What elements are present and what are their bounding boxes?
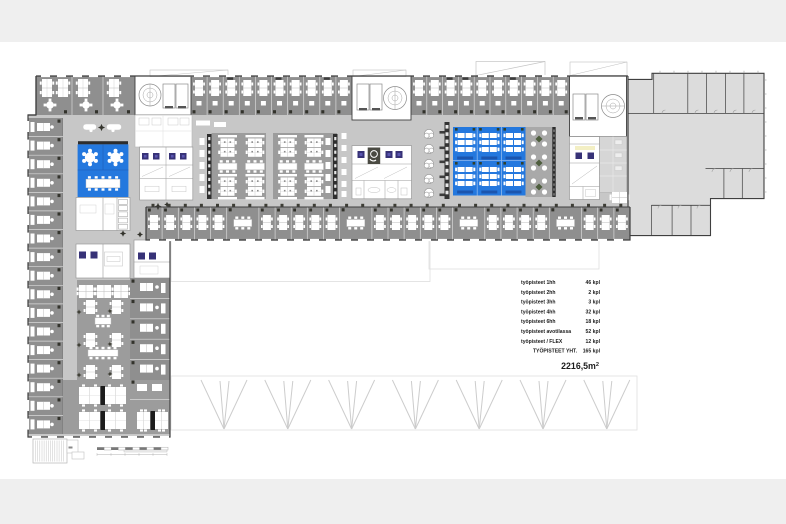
svg-text:12 kpl: 12 kpl bbox=[586, 339, 601, 345]
svg-text:työpisteet 6hh: työpisteet 6hh bbox=[521, 319, 556, 325]
svg-text:32 kpl: 32 kpl bbox=[586, 309, 601, 315]
svg-text:työpisteet 1hh: työpisteet 1hh bbox=[521, 280, 556, 286]
svg-text:työpisteet 4hh: työpisteet 4hh bbox=[521, 309, 556, 315]
svg-text:46 kpl: 46 kpl bbox=[586, 280, 601, 286]
svg-text:työpisteet 3hh: työpisteet 3hh bbox=[521, 300, 556, 306]
svg-text:työpisteet avotilassa: työpisteet avotilassa bbox=[521, 329, 571, 335]
svg-text:18 kpl: 18 kpl bbox=[586, 319, 601, 325]
svg-text:TYÖPISTEET YHT.: TYÖPISTEET YHT. bbox=[533, 348, 578, 355]
svg-text:2216,5m2: 2216,5m2 bbox=[561, 361, 599, 371]
svg-text:työpisteet / FLEX: työpisteet / FLEX bbox=[521, 339, 563, 345]
svg-text:3 kpl: 3 kpl bbox=[588, 300, 600, 306]
svg-text:2 kpl: 2 kpl bbox=[588, 290, 600, 296]
svg-text:165 kpl: 165 kpl bbox=[583, 349, 601, 355]
svg-text:työpisteet 2hh: työpisteet 2hh bbox=[521, 290, 556, 296]
svg-text:52 kpl: 52 kpl bbox=[586, 329, 601, 335]
